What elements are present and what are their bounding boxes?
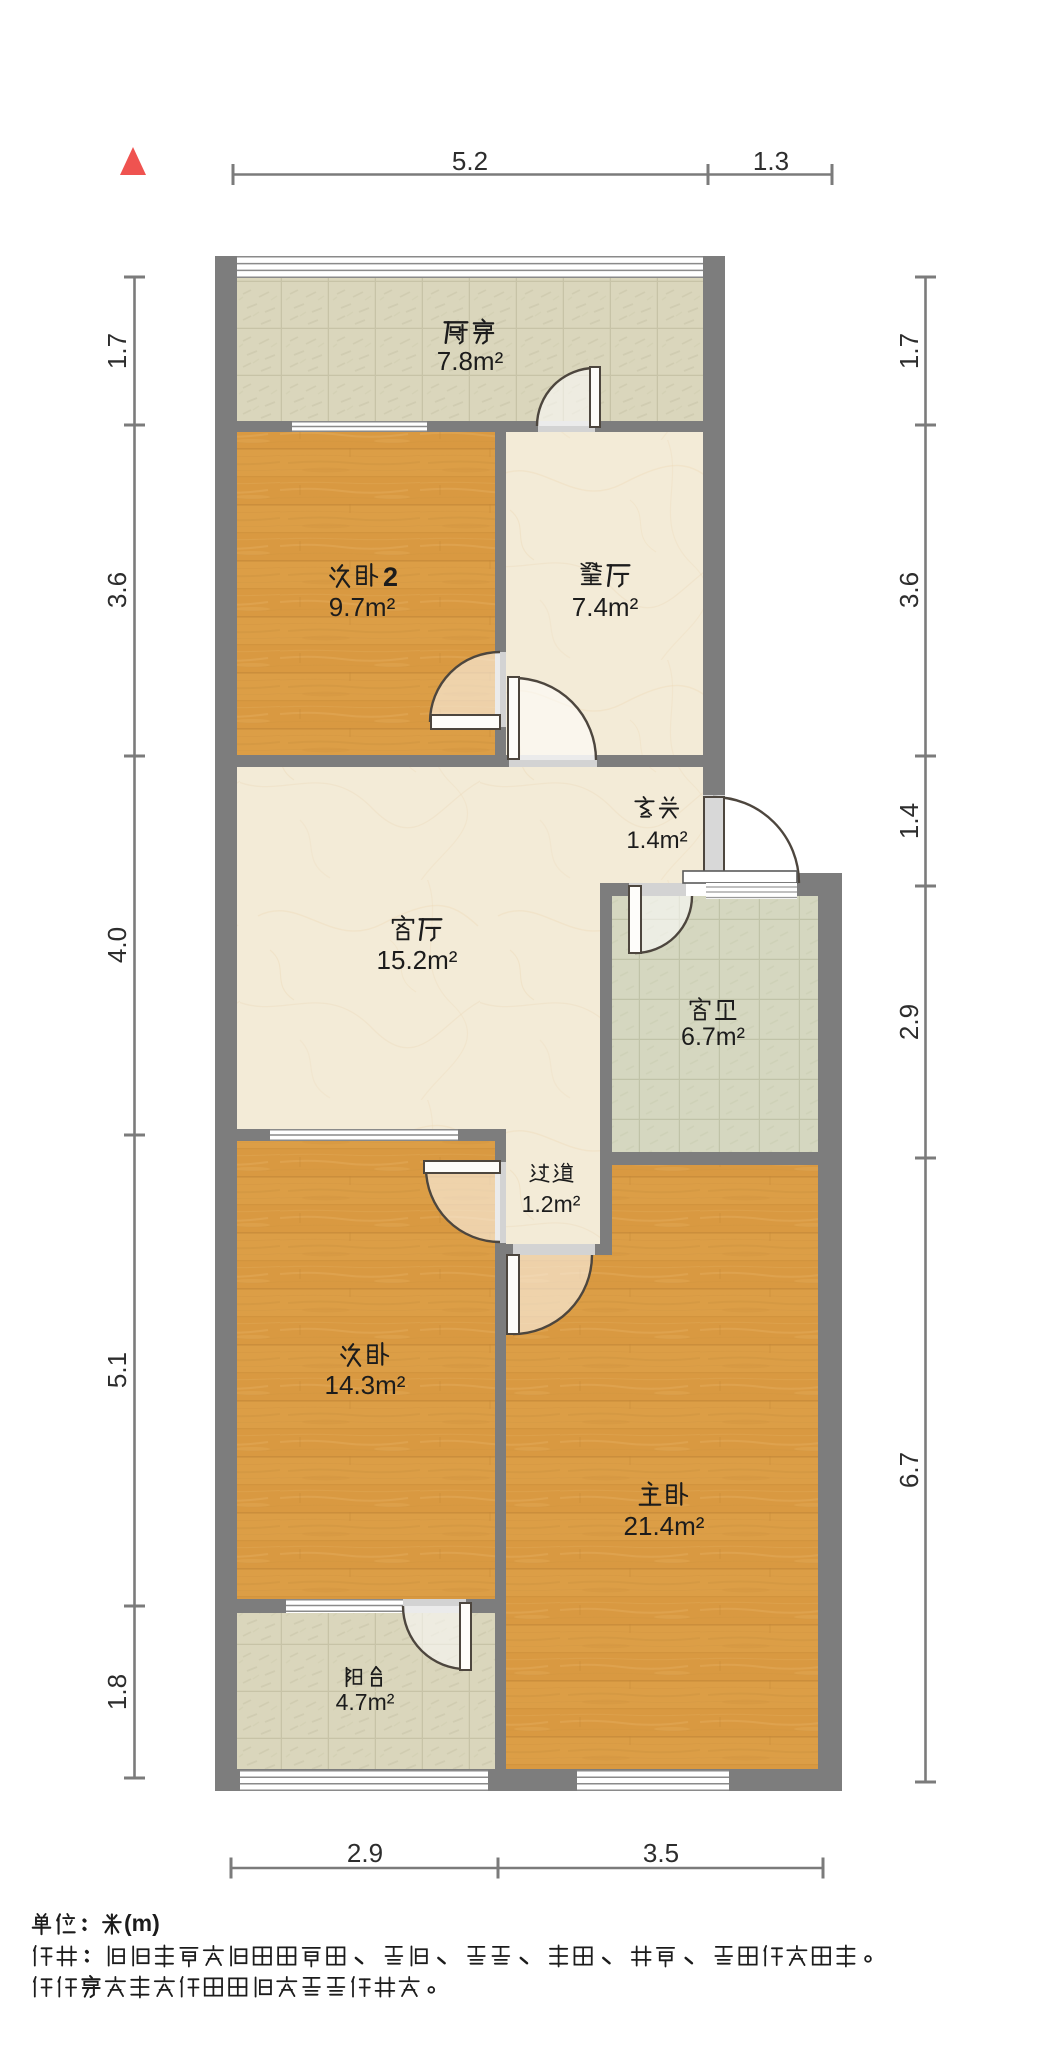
svg-text:1.3: 1.3 bbox=[753, 146, 789, 176]
svg-text:4.7m²: 4.7m² bbox=[336, 1689, 395, 1715]
svg-text:14.3m²: 14.3m² bbox=[325, 1370, 406, 1400]
svg-text:15.2m²: 15.2m² bbox=[377, 945, 458, 975]
svg-text:7.4m²: 7.4m² bbox=[572, 592, 639, 622]
svg-text:4.0: 4.0 bbox=[102, 927, 132, 963]
svg-text:5.2: 5.2 bbox=[452, 146, 488, 176]
svg-text:9.7m²: 9.7m² bbox=[329, 592, 396, 622]
svg-text:1.2m²: 1.2m² bbox=[522, 1191, 581, 1217]
svg-text:1.7: 1.7 bbox=[102, 333, 132, 369]
svg-text:5.1: 5.1 bbox=[102, 1352, 132, 1388]
svg-text:2.9: 2.9 bbox=[894, 1004, 924, 1040]
svg-text:3.6: 3.6 bbox=[894, 572, 924, 608]
svg-text:2.9: 2.9 bbox=[347, 1838, 383, 1868]
svg-text:7.8m²: 7.8m² bbox=[437, 346, 504, 376]
svg-text:6.7: 6.7 bbox=[894, 1452, 924, 1488]
svg-text:1.8: 1.8 bbox=[102, 1674, 132, 1710]
svg-text:6.7m²: 6.7m² bbox=[681, 1023, 745, 1051]
svg-text:1.4: 1.4 bbox=[894, 803, 924, 839]
svg-text:3.5: 3.5 bbox=[643, 1838, 679, 1868]
svg-text:1.7: 1.7 bbox=[894, 333, 924, 369]
svg-text:1.4m²: 1.4m² bbox=[626, 827, 687, 854]
svg-text:21.4m²: 21.4m² bbox=[624, 1511, 705, 1541]
svg-text:(m): (m) bbox=[124, 1910, 160, 1936]
svg-text:3.6: 3.6 bbox=[102, 572, 132, 608]
svg-text:2: 2 bbox=[383, 562, 398, 592]
